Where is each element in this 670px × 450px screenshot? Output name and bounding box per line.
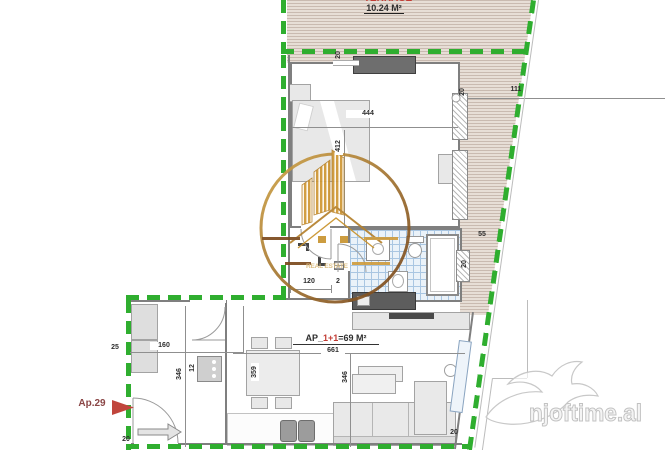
wardrobe-unit: [353, 56, 416, 74]
sofa-cushion-line: [372, 403, 373, 436]
dim-12: 12: [189, 359, 197, 377]
floor-plan-canvas: REAL ESTATE njoftime.al TERRACE 10.24 M²…: [0, 0, 670, 450]
dining-chair: [251, 337, 268, 349]
dim-412: 412: [335, 137, 343, 155]
dim-20-bed-top: 20: [335, 46, 343, 64]
dining-chair: [275, 397, 292, 409]
boundary-hall-left: [126, 300, 131, 450]
wall-kitchen-top: [286, 298, 352, 300]
shaft-unit: [197, 356, 222, 382]
parcel-line: [493, 378, 527, 379]
parcel-line: [527, 300, 528, 378]
wall-left: [288, 55, 290, 298]
dim-111: 111: [502, 86, 530, 94]
dining-chair: [251, 397, 268, 409]
wall-hall-right: [225, 300, 227, 445]
toilet-bowl: [408, 243, 422, 258]
boundary-bottom: [126, 444, 471, 449]
radiator: [334, 261, 344, 270]
dove-icon: [486, 362, 598, 425]
terrace-area: 10.24 M²: [346, 3, 422, 13]
dim-444: 444: [346, 110, 390, 118]
door-arc-entry: [133, 398, 178, 443]
dim-346-left: 346: [176, 365, 184, 383]
washing-machine-door: [372, 243, 384, 255]
dim-line-346-right: [350, 353, 351, 447]
survey-line: [457, 98, 665, 99]
apartment-label: AP_1+1=69 M²: [293, 333, 379, 345]
corridor-wall-stub: [318, 263, 326, 266]
shaft-dot: [212, 360, 216, 364]
kitchen-counter-sink: [357, 296, 370, 306]
dim-line-ext: [243, 306, 244, 354]
dim-661: 661: [321, 347, 345, 355]
bedroom-window: [452, 150, 468, 220]
dim-line-346-left: [185, 306, 186, 447]
bedroom-door-gap: [301, 226, 330, 231]
kitchen-sink-right: [298, 420, 315, 442]
coffee-table: [352, 374, 396, 394]
shaft-dot: [212, 374, 216, 378]
hall-wardrobe: [131, 304, 158, 340]
tv: [389, 313, 434, 319]
dim-line-444: [292, 127, 458, 128]
dim-line-661: [233, 353, 465, 354]
kitchen-sink-left: [280, 420, 297, 442]
living-window: [450, 340, 472, 413]
boundary-terrace: [281, 49, 528, 54]
dim-2: 2: [333, 278, 343, 286]
dim-55: 55: [472, 231, 492, 239]
toilet-tank: [406, 236, 424, 243]
dim-line-412: [344, 130, 345, 228]
entry-arrow-icon: [138, 424, 181, 440]
door-arc-hall: [192, 307, 225, 340]
site-watermark-text: njoftime.al: [529, 400, 642, 427]
site-watermark: njoftime.al: [486, 362, 642, 427]
dim-20-bed-right: 20: [459, 83, 467, 101]
bathroom-door-gap: [346, 243, 350, 271]
shower-inner: [430, 238, 455, 292]
dim-20-bath: 20: [461, 255, 469, 273]
dim-359: 359: [251, 363, 259, 381]
sofa-cushion-line: [408, 403, 409, 436]
dim-160: 160: [150, 342, 178, 350]
dining-chair: [275, 337, 292, 349]
dim-120: 120: [294, 278, 324, 286]
boundary-left: [281, 55, 286, 297]
dim-20-living: 20: [446, 429, 462, 437]
dim-tick: [331, 285, 332, 293]
boundary-hall-top: [126, 295, 287, 300]
dim-line-160: [130, 352, 243, 353]
dim-tick: [290, 285, 291, 293]
sofa-chaise: [414, 381, 447, 435]
dim-346-right: 346: [342, 368, 350, 386]
dim-line-120: [290, 289, 332, 290]
bath-sink-basin: [392, 274, 404, 288]
shaft-dot: [212, 367, 216, 371]
dim-25: 25: [108, 344, 122, 352]
dim-20-entry: 20: [118, 436, 134, 444]
corridor-wall-stub: [306, 243, 309, 251]
unit-label: Ap.29: [74, 398, 110, 410]
boundary-left-top: [281, 0, 286, 53]
